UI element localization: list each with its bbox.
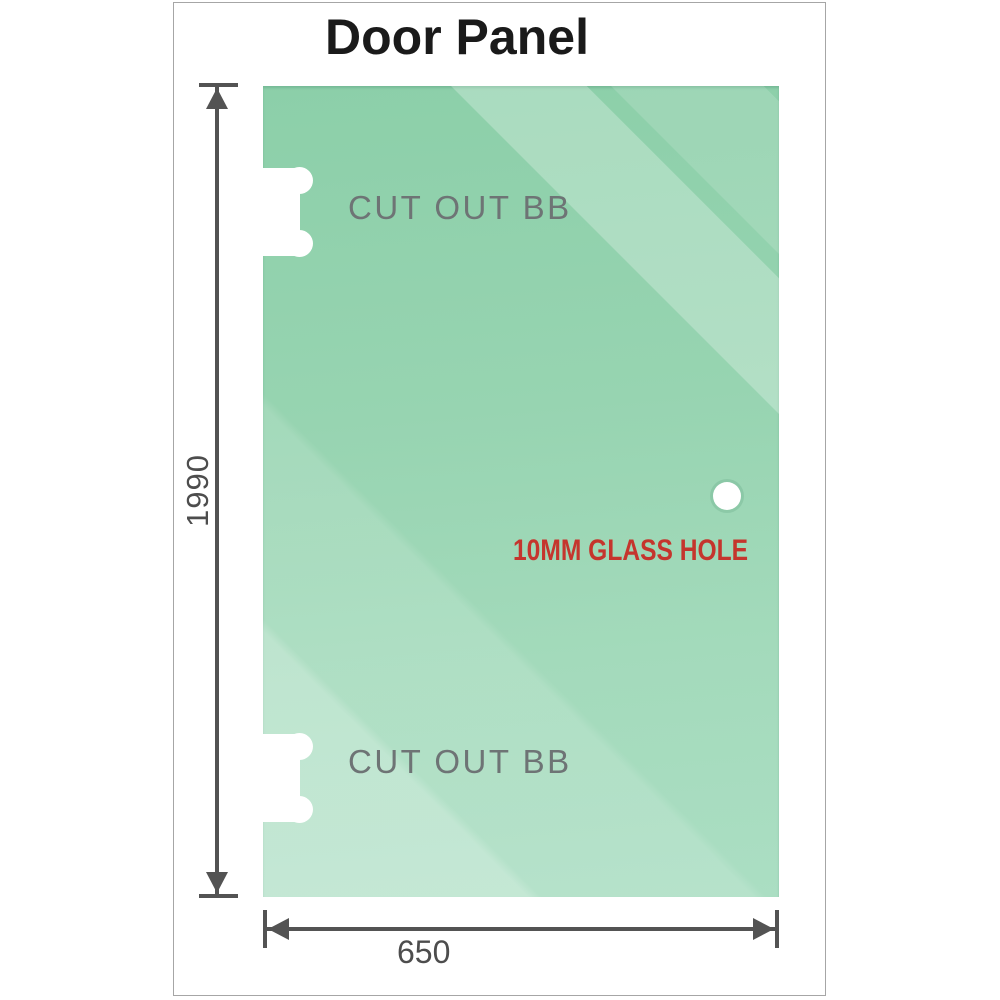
glass-panel: CUT OUT BB CUT OUT BB 10MM GLASS HOLE bbox=[263, 86, 779, 897]
height-dimension: 1990 bbox=[199, 83, 238, 898]
diagram-title: Door Panel bbox=[173, 8, 826, 66]
cutout-top-label: CUT OUT BB bbox=[348, 189, 572, 227]
glass-hole bbox=[713, 482, 741, 510]
cutout-bottom-label: CUT OUT BB bbox=[348, 743, 572, 781]
arrow-right-icon bbox=[753, 918, 774, 940]
height-dimension-label: 1990 bbox=[180, 83, 216, 898]
arrow-left-icon bbox=[268, 918, 289, 940]
width-dimension-label: 650 bbox=[397, 934, 450, 971]
width-dimension: 650 bbox=[263, 910, 779, 948]
glass-reflection-stripe bbox=[581, 86, 779, 897]
glass-hole-label: 10MM GLASS HOLE bbox=[513, 534, 748, 568]
hinge-cutout-bottom bbox=[263, 734, 300, 822]
hinge-cutout-top bbox=[263, 168, 300, 256]
dimension-line bbox=[266, 927, 776, 931]
